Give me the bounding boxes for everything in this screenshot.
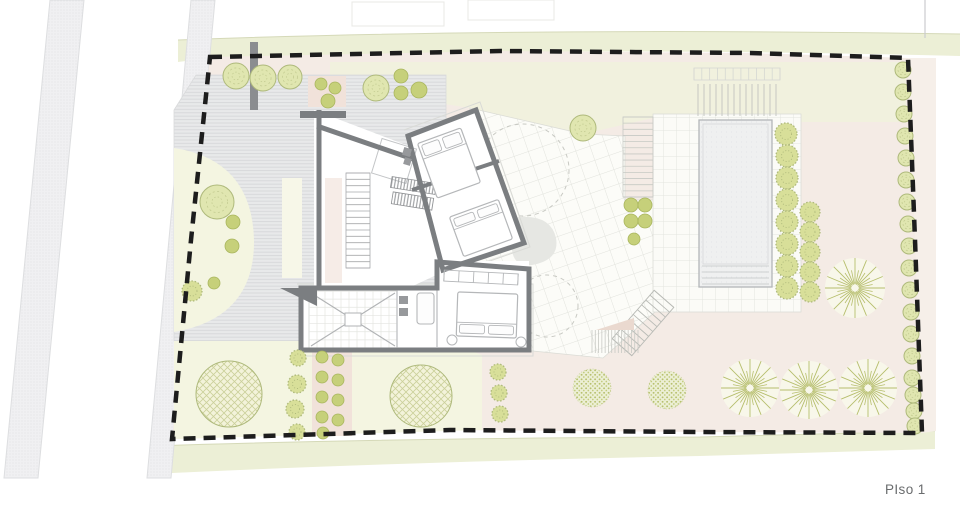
tree-spiky <box>492 406 508 422</box>
tree-stip <box>573 369 611 407</box>
pool <box>699 120 772 287</box>
tree-dot <box>316 351 328 363</box>
tree-dot <box>332 374 344 386</box>
tree-fine <box>904 370 920 386</box>
tree-palm <box>825 258 885 318</box>
tree-spiky <box>288 375 306 393</box>
tree-spiky <box>776 189 798 211</box>
tree-spiky <box>800 222 820 242</box>
tree-spiky <box>800 262 820 282</box>
tree-dot <box>638 214 652 228</box>
tree-fine <box>200 185 234 219</box>
tree-spiky <box>776 167 798 189</box>
tree-dot <box>332 354 344 366</box>
tree-dot <box>624 214 638 228</box>
side-table <box>516 337 526 347</box>
tree-cross <box>196 361 262 427</box>
tree-spiky <box>800 242 820 262</box>
tree-palm <box>780 361 838 419</box>
tree-dot <box>638 198 652 212</box>
bathtub <box>417 293 434 324</box>
tree-dot <box>411 82 427 98</box>
tree-palm <box>839 359 897 417</box>
tree-spiky <box>776 211 798 233</box>
tree-dot <box>208 277 220 289</box>
tree-spiky <box>286 400 304 418</box>
tree-spiky <box>289 424 305 440</box>
tree-fine <box>223 63 249 89</box>
tree-dot <box>332 394 344 406</box>
tree-spiky <box>775 123 797 145</box>
tree-dot <box>321 94 335 108</box>
tree-stip <box>648 371 686 409</box>
tree-dot <box>316 411 328 423</box>
tree-spiky <box>290 350 306 366</box>
tree-dot <box>316 391 328 403</box>
tree-dot <box>225 239 239 253</box>
tree-dot <box>394 69 408 83</box>
tree-dot <box>316 371 328 383</box>
tree-spiky <box>800 202 820 222</box>
tree-fine <box>278 65 302 89</box>
tree-dot <box>624 198 638 212</box>
bath-fixture <box>399 296 408 304</box>
tree-fine <box>363 75 389 101</box>
skylight-center <box>345 313 361 326</box>
floor-label: PIso 1 <box>885 482 926 497</box>
hall-strip <box>325 178 342 283</box>
tree-spiky <box>776 145 798 167</box>
neighbor-outline <box>468 0 554 20</box>
tree-spiky <box>491 385 507 401</box>
side-table <box>447 335 457 345</box>
neighbor-outline <box>352 2 444 26</box>
tree-spiky <box>776 255 798 277</box>
deck-slats-south <box>592 330 638 353</box>
tree-dot <box>226 215 240 229</box>
bed <box>456 292 517 338</box>
tree-dot <box>628 233 640 245</box>
tree-spiky <box>490 364 506 380</box>
site-plan-page: PIso 1 <box>0 0 960 532</box>
tree-palm <box>721 359 779 417</box>
tree-cross <box>390 365 452 427</box>
site-plan-drawing: PIso 1 <box>0 0 960 532</box>
tree-dot <box>329 82 341 94</box>
tree-spiky <box>776 233 798 255</box>
tree-dot <box>394 86 408 100</box>
tree-fine <box>250 65 276 91</box>
tree-dot <box>315 78 327 90</box>
tree-dot <box>332 414 344 426</box>
tree-spiky <box>800 282 820 302</box>
tree-spiky <box>776 277 798 299</box>
road-far <box>4 0 84 478</box>
bath-fixture <box>399 308 408 316</box>
walkway-strip <box>282 178 302 278</box>
wall-garden <box>300 111 346 118</box>
tree-fine <box>570 115 596 141</box>
